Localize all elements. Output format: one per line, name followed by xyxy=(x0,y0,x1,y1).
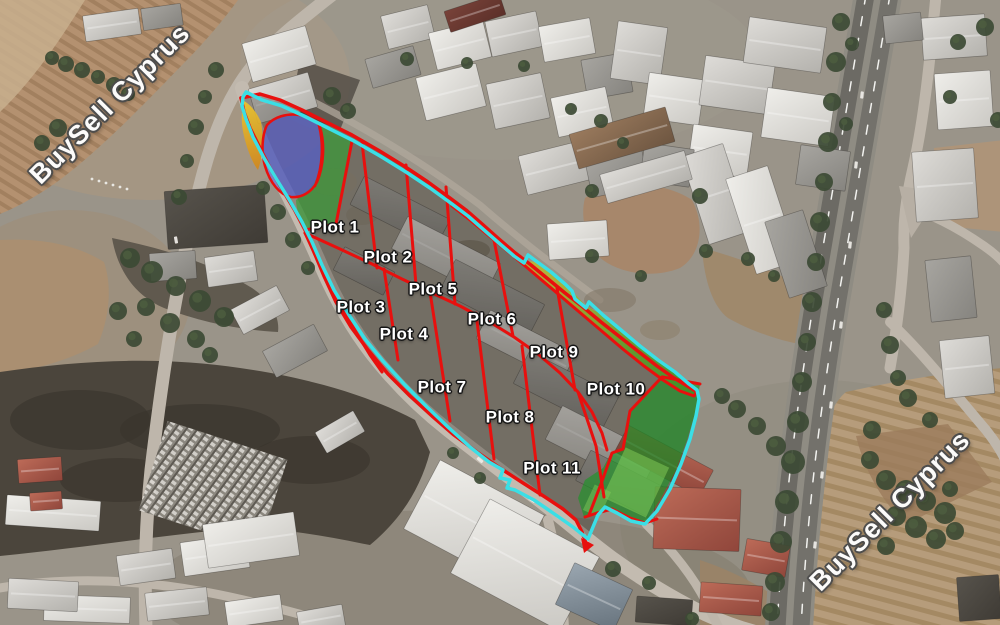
plot-label-2: Plot 2 xyxy=(364,249,413,266)
plot-label-10: Plot 10 xyxy=(587,381,646,398)
plot-label-9: Plot 9 xyxy=(530,344,579,361)
plot-label-3: Plot 3 xyxy=(337,299,386,316)
plot-label-4: Plot 4 xyxy=(380,326,429,343)
plot-label-11: Plot 11 xyxy=(523,460,581,477)
satellite-plot-map[interactable]: Plot 1 Plot 2 Plot 3 Plot 4 Plot 5 Plot … xyxy=(0,0,1000,625)
plot-label-6: Plot 6 xyxy=(468,311,517,328)
plot-label-1: Plot 1 xyxy=(311,219,360,236)
plot-label-8: Plot 8 xyxy=(486,409,535,426)
plot-label-5: Plot 5 xyxy=(409,281,458,298)
plot-label-7: Plot 7 xyxy=(418,379,467,396)
